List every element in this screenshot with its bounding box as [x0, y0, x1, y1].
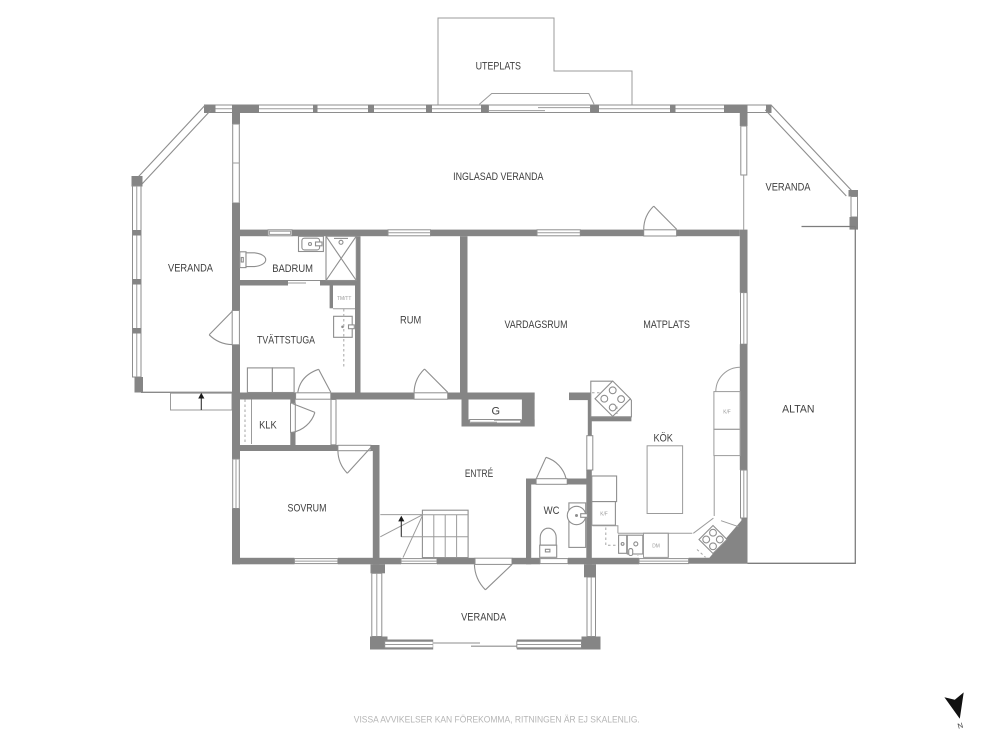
- svg-text:VARDAGSRUM: VARDAGSRUM: [505, 319, 568, 331]
- svg-text:VERANDA: VERANDA: [766, 182, 812, 194]
- svg-text:UTEPLATS: UTEPLATS: [476, 60, 521, 72]
- svg-text:VISSA AVVIKELSER KAN FÖREKOMMA: VISSA AVVIKELSER KAN FÖREKOMMA, RITNINGE…: [354, 714, 640, 725]
- svg-text:K/F: K/F: [723, 409, 731, 415]
- svg-text:WC: WC: [544, 505, 560, 517]
- svg-text:BADRUM: BADRUM: [272, 263, 313, 275]
- svg-text:MATPLATS: MATPLATS: [643, 319, 690, 331]
- svg-text:TM/TT: TM/TT: [337, 296, 352, 302]
- svg-text:VERANDA: VERANDA: [168, 262, 214, 274]
- svg-text:KLK: KLK: [259, 419, 277, 431]
- svg-text:TVÄTTSTUGA: TVÄTTSTUGA: [257, 335, 316, 347]
- svg-text:ENTRÉ: ENTRÉ: [465, 467, 493, 480]
- svg-text:G: G: [492, 406, 501, 418]
- svg-text:KÖK: KÖK: [654, 432, 674, 444]
- svg-text:INGLASAD VERANDA: INGLASAD VERANDA: [453, 171, 544, 183]
- svg-text:ALTAN: ALTAN: [782, 403, 814, 415]
- svg-text:SOVRUM: SOVRUM: [288, 503, 327, 515]
- svg-text:VERANDA: VERANDA: [461, 611, 507, 623]
- svg-text:RUM: RUM: [400, 314, 421, 326]
- svg-text:DM: DM: [652, 544, 660, 550]
- svg-text:K/F: K/F: [600, 511, 608, 517]
